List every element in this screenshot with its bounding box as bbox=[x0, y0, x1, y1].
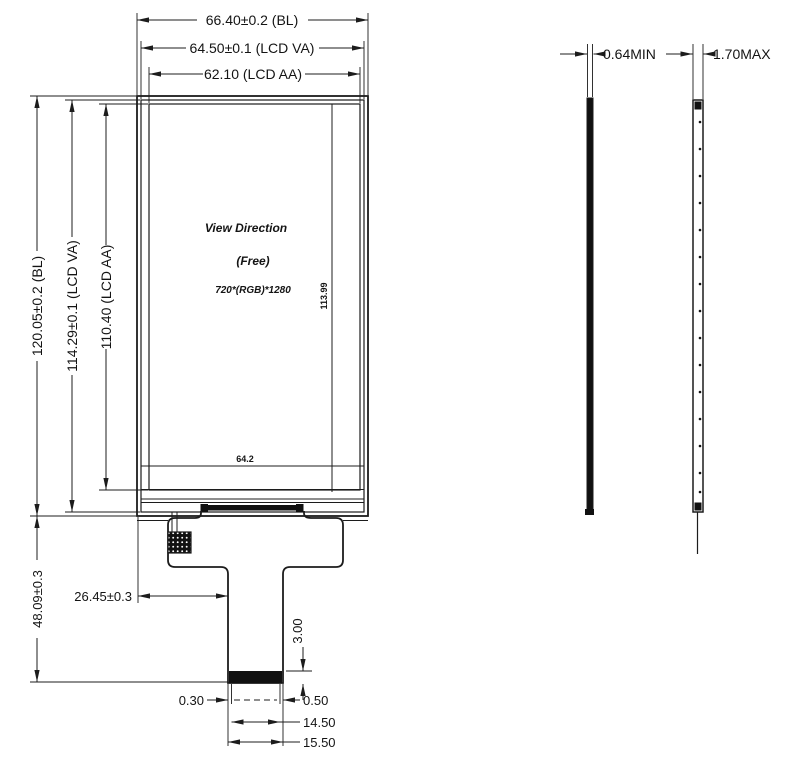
side-profile-max bbox=[693, 100, 703, 512]
lcd-engineering-drawing: View Direction (Free) 720*(RGB)*1280 113… bbox=[0, 0, 800, 759]
fpc-outline bbox=[168, 511, 343, 683]
free-label: (Free) bbox=[236, 254, 269, 268]
dim-contact-length: 3.00 bbox=[290, 618, 305, 643]
dim-height-bl: 120.05±0.2 (BL) bbox=[29, 256, 45, 356]
dim-module-height: 48.09±0.3 bbox=[30, 570, 45, 628]
inner-height-label: 113.99 bbox=[319, 282, 329, 309]
dim-width-aa: 62.10 (LCD AA) bbox=[204, 66, 302, 82]
view-direction-label: View Direction bbox=[205, 221, 287, 235]
drawing-page: View Direction (Free) 720*(RGB)*1280 113… bbox=[0, 0, 800, 759]
contact-fingers-bar bbox=[229, 671, 282, 683]
side-view-right: 1.70MAX bbox=[666, 44, 771, 554]
fpc-tail bbox=[168, 504, 343, 683]
dim-tail-offset: 26.45±0.3 bbox=[74, 589, 132, 604]
dim-width-va: 64.50±0.1 (LCD VA) bbox=[190, 40, 315, 56]
screen-labels: View Direction (Free) 720*(RGB)*1280 113… bbox=[205, 221, 329, 464]
front-view: View Direction (Free) 720*(RGB)*1280 113… bbox=[137, 96, 368, 683]
driver-ic bbox=[168, 532, 191, 553]
backlight-outline bbox=[137, 96, 368, 516]
dim-tail-width: 15.50 bbox=[303, 735, 336, 750]
side-profile-max-cap-top bbox=[695, 102, 702, 110]
dim-width-group: 66.40±0.2 (BL) 64.50±0.1 (LCD VA) 62.10 … bbox=[137, 12, 368, 103]
resolution-label: 720*(RGB)*1280 bbox=[215, 285, 291, 296]
dim-left-margin: 0.30 bbox=[179, 693, 204, 708]
connector-end-right bbox=[296, 504, 304, 513]
lcd-va-outline bbox=[141, 100, 364, 512]
side-profile-min-foot bbox=[585, 509, 594, 515]
side-profile-max-cap-bottom bbox=[695, 503, 702, 511]
dim-width-bl: 66.40±0.2 (BL) bbox=[206, 12, 299, 28]
side-profile-min bbox=[587, 98, 593, 511]
dim-height-va: 114.29±0.1 (LCD VA) bbox=[64, 240, 80, 372]
dim-max-thickness: 1.70MAX bbox=[713, 46, 771, 62]
connector-bar bbox=[205, 505, 300, 511]
dim-contact-width: 14.50 bbox=[303, 715, 336, 730]
dim-height-aa: 110.40 (LCD AA) bbox=[98, 245, 114, 350]
dim-right-margin: 0.50 bbox=[303, 693, 328, 708]
dim-height-group: 120.05±0.2 (BL) 114.29±0.1 (LCD VA) 110.… bbox=[29, 96, 148, 516]
side-view-left: 0.64MIN bbox=[560, 44, 656, 515]
dim-min-thickness: 0.64MIN bbox=[603, 46, 656, 62]
inner-width-label: 64.2 bbox=[236, 454, 254, 464]
